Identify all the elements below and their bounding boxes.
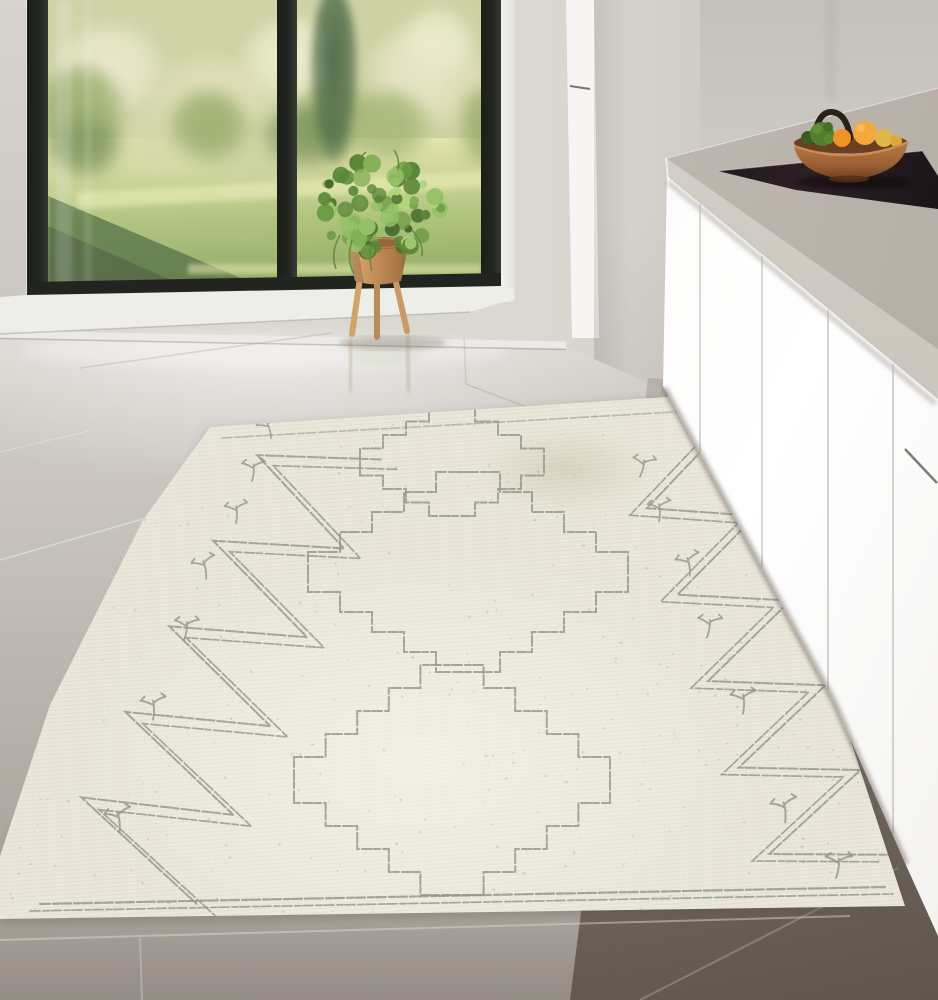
fruit-bowl	[0, 0, 938, 1000]
orange-highlight	[857, 124, 865, 132]
orange	[853, 121, 877, 145]
green-fruit-bump	[823, 122, 833, 132]
yellow-fruit	[875, 129, 893, 147]
bowl-base	[829, 176, 869, 183]
green-fruit-bump	[824, 134, 834, 144]
orange	[833, 129, 851, 147]
green-fruit-bump	[812, 124, 822, 134]
kitchen-photo-scene	[0, 0, 938, 1000]
